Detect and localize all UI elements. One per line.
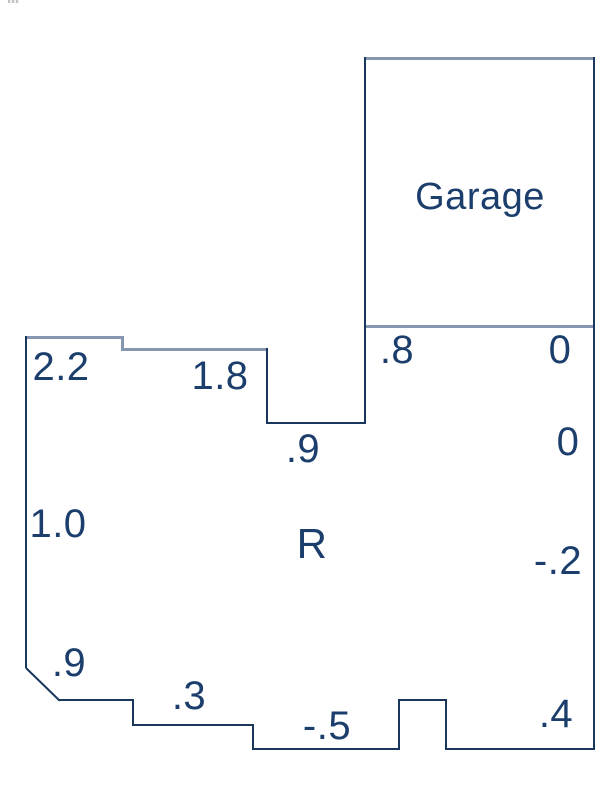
outline-top-edge-1 — [25, 336, 123, 339]
outline-right-edge — [593, 57, 595, 750]
spot-elev-dot9-corner: .9 — [52, 643, 86, 683]
spot-elev-dot8: .8 — [380, 330, 414, 370]
outline-bump-top — [398, 699, 447, 701]
outline-notch-left — [266, 348, 268, 424]
spot-elev-1-0: 1.0 — [29, 504, 86, 544]
outline-bottom-step-2 — [132, 724, 254, 726]
room-label-garage: Garage — [415, 178, 545, 216]
spot-elev-dot9-step: .9 — [286, 429, 320, 469]
outline-garage-top — [364, 57, 595, 60]
scan-artifact — [8, 0, 19, 3]
outline-notch-bottom — [266, 422, 365, 424]
spot-elev-0-lower: 0 — [557, 422, 580, 462]
spot-elev-neg-dot5: -.5 — [303, 706, 351, 746]
outline-bump-right — [445, 699, 447, 750]
outline-left-edge — [25, 336, 27, 668]
outline-bottom-edge-1 — [252, 748, 400, 750]
floor-plan-canvas: GarageR2.21.8.80.901.0-.2.9.3-.5.4 — [0, 0, 600, 800]
outline-bottom-drop-1 — [132, 699, 134, 726]
spot-elev-0-upper: 0 — [549, 330, 572, 370]
spot-elev-1-8: 1.8 — [191, 356, 248, 396]
outline-bump-left — [398, 699, 400, 750]
outline-top-edge-2 — [121, 348, 268, 351]
room-label-r: R — [297, 523, 328, 565]
spot-elev-dot4: .4 — [539, 694, 573, 734]
outline-bottom-drop-2 — [252, 724, 254, 750]
spot-elev-neg-dot2: -.2 — [534, 541, 582, 581]
outline-garage-left — [364, 57, 366, 424]
outline-bottom-edge-2 — [445, 748, 595, 750]
outline-bottom-step-1 — [59, 699, 134, 701]
spot-elev-2-2: 2.2 — [32, 347, 89, 387]
spot-elev-dot3: .3 — [172, 676, 206, 716]
